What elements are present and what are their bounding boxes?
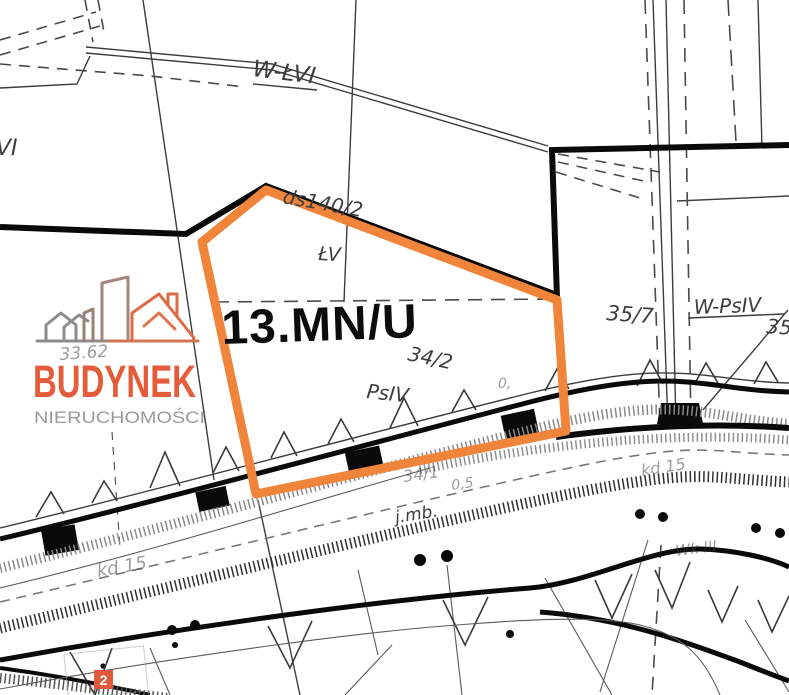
tree-dots <box>100 509 785 669</box>
zone-designation-label: 13.MN/U <box>221 295 419 355</box>
label-kd15-left: kd 15 <box>95 552 148 581</box>
label-lv: ŁV <box>317 243 343 266</box>
label-psiv: PsIV <box>365 379 411 407</box>
label-wkiii: Wk III <box>674 537 718 560</box>
drain-channel <box>86 47 548 152</box>
label-35: 35 <box>766 314 789 340</box>
label-0-5: 0,5 <box>450 475 474 494</box>
logo-name: BUDYNEK <box>33 356 196 407</box>
label-jmb: j.mb. <box>392 501 439 528</box>
label-35-7: 35/7 <box>606 301 655 328</box>
map-canvas: 33.62 34/1 0,5 kd 15 kd 15 Wk III j.mb. … <box>0 0 789 695</box>
label-zero: 0, <box>498 376 511 392</box>
marker-number: 2 <box>100 672 108 688</box>
label-vi: VI <box>0 136 18 161</box>
skyline-icon <box>37 277 198 341</box>
cadastral-map: 33.62 34/1 0,5 kd 15 kd 15 Wk III j.mb. … <box>0 0 789 695</box>
label-wpsiv: W-PsIV <box>693 293 763 319</box>
label-kd15-right: kd 15 <box>640 454 687 480</box>
logo-subtitle: NIERUCHOMOŚCI <box>34 408 205 427</box>
